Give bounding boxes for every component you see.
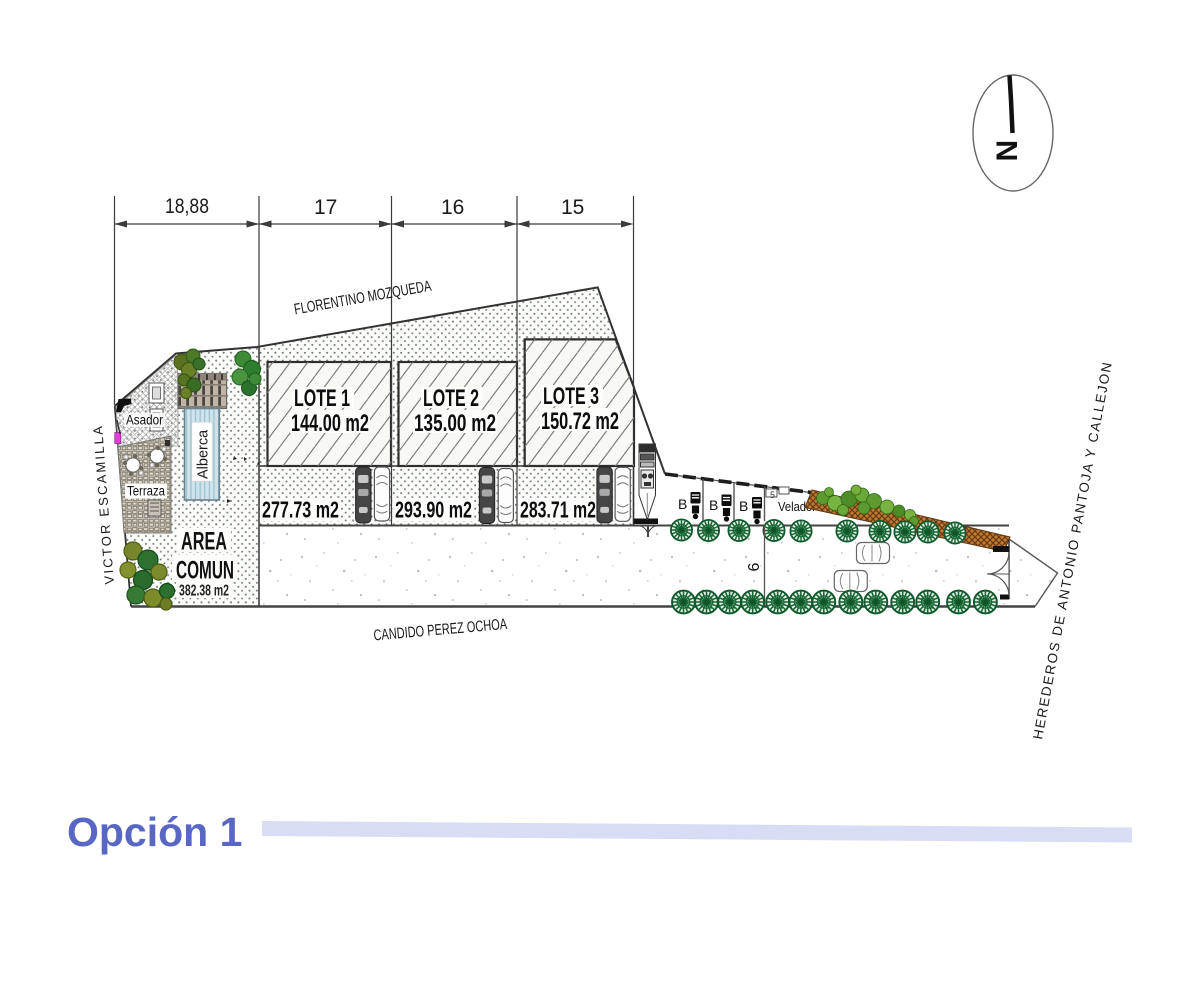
svg-text:COMUN: COMUN xyxy=(176,557,234,585)
svg-text:Opción 1: Opción 1 xyxy=(67,809,242,855)
svg-text:16: 16 xyxy=(441,196,464,219)
svg-text:5: 5 xyxy=(770,490,775,500)
svg-text:293.90 m2: 293.90 m2 xyxy=(395,497,472,523)
svg-text:18,88: 18,88 xyxy=(165,195,209,218)
svg-text:382.38 m2: 382.38 m2 xyxy=(179,583,229,600)
svg-text:6: 6 xyxy=(746,563,763,572)
svg-text:LOTE 2: LOTE 2 xyxy=(423,385,479,412)
svg-text:Terraza: Terraza xyxy=(127,484,165,499)
svg-text:B: B xyxy=(739,498,748,514)
svg-text:277.73 m2: 277.73 m2 xyxy=(262,497,339,523)
svg-text:150.72 m2: 150.72 m2 xyxy=(541,408,619,435)
svg-text:15: 15 xyxy=(561,196,584,219)
svg-text:144.00 m2: 144.00 m2 xyxy=(291,410,369,437)
svg-text:283.71 m2: 283.71 m2 xyxy=(520,497,596,523)
svg-text:AREA: AREA xyxy=(181,528,227,556)
svg-text:17: 17 xyxy=(314,196,337,219)
svg-text:Asador: Asador xyxy=(126,413,163,428)
svg-text:N: N xyxy=(991,140,1024,162)
svg-text:LOTE 1: LOTE 1 xyxy=(294,385,350,412)
svg-text:B: B xyxy=(678,496,687,512)
svg-text:LOTE 3: LOTE 3 xyxy=(543,383,599,410)
svg-text:B: B xyxy=(709,497,718,513)
svg-text:Alberca: Alberca xyxy=(196,429,212,479)
svg-text:135.00 m2: 135.00 m2 xyxy=(414,410,496,437)
